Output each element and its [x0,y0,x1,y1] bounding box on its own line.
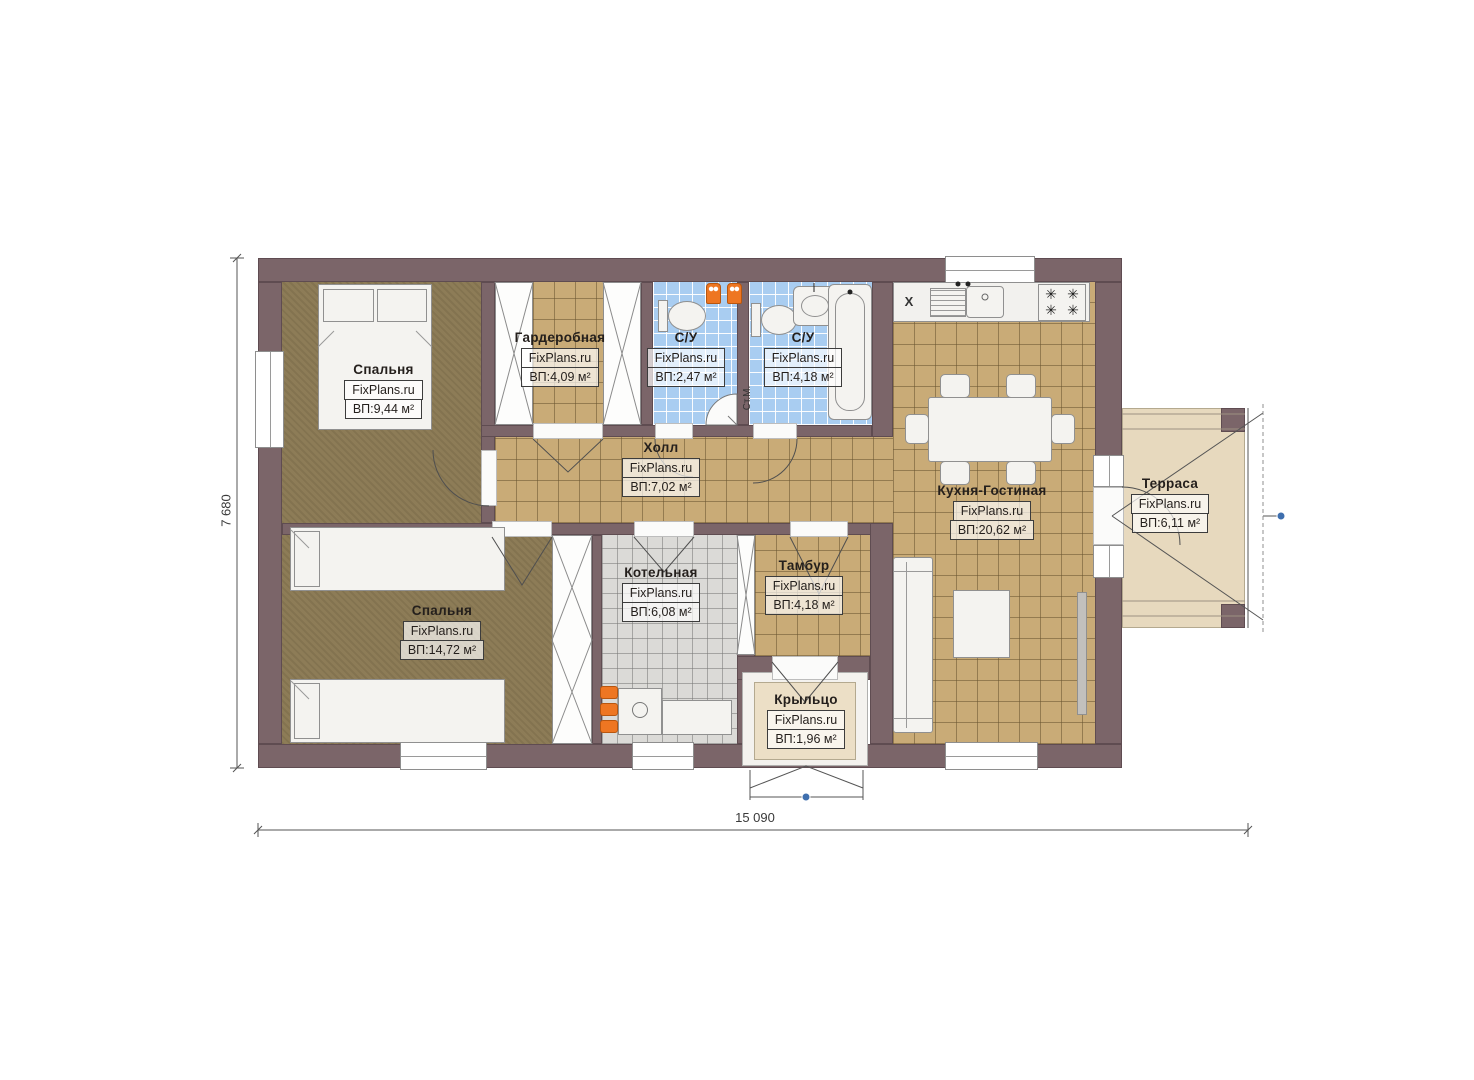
chair [1051,414,1075,444]
room-label-kitchen-living: Кухня-Гостиная FixPlans.ru ВП:20,62 м² [930,483,1054,540]
room-name: Тамбур [779,558,830,573]
burner-icon: ✳ [1040,286,1062,303]
room-area: ВП:6,08 м² [622,602,699,622]
bed-single-1 [290,527,505,591]
room-name: С/У [675,330,698,345]
burner-icon: ✳ [1062,303,1084,320]
watermark: FixPlans.ru [521,348,600,368]
room-area: ВП:4,18 м² [765,595,842,615]
room-area: ВП:20,62 м² [950,520,1034,540]
room-name: Спальня [412,603,472,618]
room-label-tambour: Тамбур FixPlans.ru ВП:4,18 м² [758,558,850,615]
chair [940,374,970,398]
watermark: FixPlans.ru [953,501,1032,521]
watermark: FixPlans.ru [767,710,846,730]
watermark: FixPlans.ru [1131,494,1210,514]
room-name: Кухня-Гостиная [937,483,1046,498]
room-area: ВП:9,44 м² [345,399,422,419]
burner-icon: ✳ [1062,286,1084,303]
window-terrace-sidelight-top [1093,455,1124,487]
room-area: ВП:2,47 м² [647,367,724,387]
room-label-bath1: С/У FixPlans.ru ВП:2,47 м² [643,330,729,387]
door-bath1 [655,423,693,439]
watermark: FixPlans.ru [764,348,843,368]
watermark: FixPlans.ru [403,621,482,641]
room-label-terrace: Терраса FixPlans.ru ВП:6,11 м² [1126,476,1214,533]
room-name: Гардеробная [515,330,606,345]
room-label-bedroom2: Спальня FixPlans.ru ВП:14,72 м² [393,603,491,660]
watermark: FixPlans.ru [622,583,701,603]
chair [940,461,970,485]
room-name: Котельная [624,565,697,580]
terrace-pillar-top [1221,408,1245,432]
chair [1006,374,1036,398]
door-entrance [772,656,838,680]
kitchen-sink [966,286,1004,318]
toilet-bowl [668,301,706,331]
room-name: Спальня [353,362,413,377]
door-bedroom1 [481,450,497,506]
wall-tambour-kitchen [870,523,893,744]
watermark: FixPlans.ru [647,348,726,368]
room-label-hall: Холл FixPlans.ru ВП:7,02 м² [616,440,706,497]
window-bedroom1-left [255,351,284,448]
vent-stack-icon [727,283,742,304]
room-label-bath2: С/У FixPlans.ru ВП:4,18 м² [760,330,846,387]
watermark: FixPlans.ru [344,380,423,400]
door-wardrobe [533,423,603,439]
room-label-wardrobe: Гардеробная FixPlans.ru ВП:4,09 м² [500,330,620,387]
vent-stack-icon [706,283,721,304]
watermark: FixPlans.ru [765,576,844,596]
room-label-porch: Крыльцо FixPlans.ru ВП:1,96 м² [762,692,850,749]
dining-table [928,397,1052,462]
room-name: С/У [792,330,815,345]
door-terrace [1093,487,1124,545]
window-boiler-bottom [632,742,694,770]
pillow [323,289,374,322]
room-area: ВП:4,18 м² [764,367,841,387]
sofa [893,557,933,733]
fridge-mark: X [898,294,920,309]
chair [1006,461,1036,485]
watermark: FixPlans.ru [622,458,701,478]
room-area: ВП:6,11 м² [1132,513,1208,533]
dimension-height: 7 680 [219,481,234,541]
dimension-width: 15 090 [700,810,810,825]
room-area: ВП:14,72 м² [400,640,484,660]
stove: ✳ ✳ ✳ ✳ [1038,284,1086,321]
boiler-unit [618,688,662,735]
room-label-bedroom1: Спальня FixPlans.ru ВП:9,44 м² [331,362,436,419]
door-boiler [634,521,694,537]
pillow [294,531,320,587]
room-name: Холл [643,440,678,455]
door-tambour [790,521,848,537]
closet-bedroom2 [552,535,592,744]
window-bedroom2-bottom [400,742,487,770]
window-terrace-sidelight-bottom [1093,545,1124,578]
heating-manifold-icon [600,720,618,733]
room-area: ВП:1,96 м² [767,729,844,749]
room-name: Крыльцо [774,692,838,707]
sink-drainer [930,288,966,317]
room-area: ВП:7,02 м² [622,477,699,497]
boiler-bench [662,700,732,735]
burner-icon: ✳ [1040,303,1062,320]
washing-machine-label: Ст.М. [742,380,754,416]
pillow [294,683,320,739]
wall-bath2-kitchen [872,282,893,437]
toilet-tank [658,300,668,332]
window-living-bottom [945,742,1038,770]
room-label-boiler: Котельная FixPlans.ru ВП:6,08 м² [615,565,707,622]
floor-plan-canvas: X ✳ ✳ ✳ ✳ Ст.М. [0,0,1474,1080]
bed-single-2 [290,679,505,743]
heating-manifold-icon [600,703,618,716]
room-name: Терраса [1142,476,1198,491]
terrace-pillar-bottom [1221,604,1245,628]
heating-manifold-icon [600,686,618,699]
shaft-tambour [737,535,755,655]
pillow [377,289,427,322]
door-bath2 [753,423,797,439]
room-area: ВП:4,09 м² [521,367,598,387]
window-kitchen-top [945,256,1035,284]
chair [905,414,929,444]
tv-unit [1077,592,1087,715]
coffee-table [953,590,1010,658]
